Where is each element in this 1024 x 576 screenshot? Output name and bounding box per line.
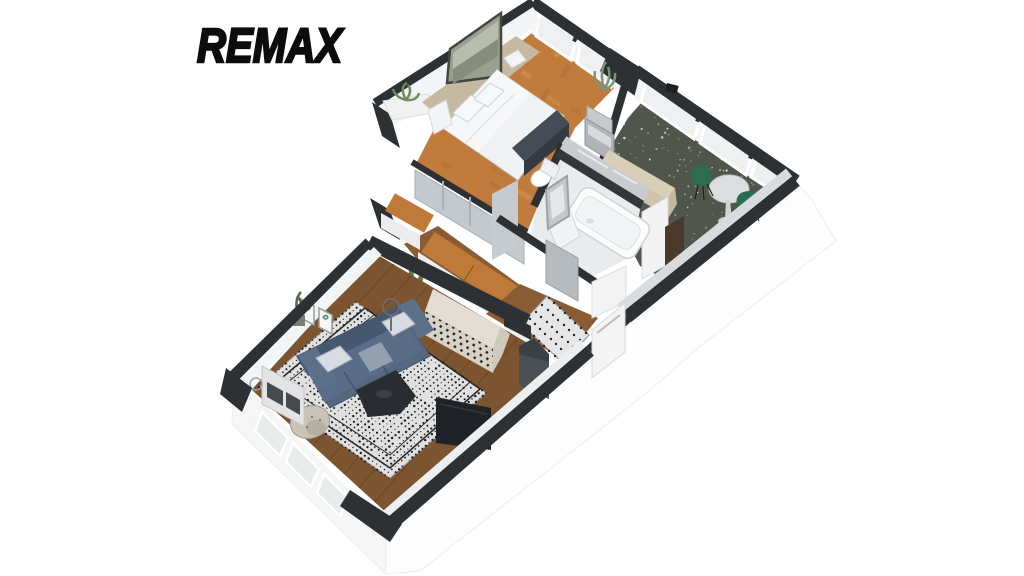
svg-text:REMAX: REMAX (197, 20, 344, 73)
